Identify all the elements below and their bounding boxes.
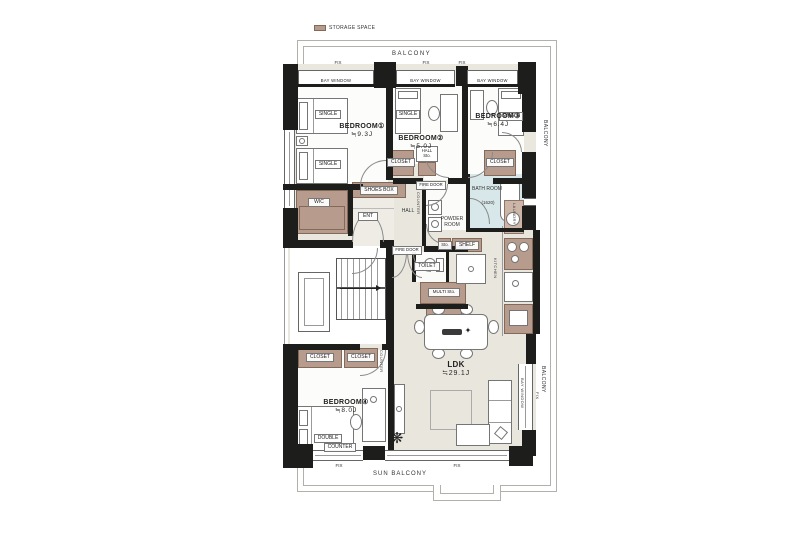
bed-fold-line bbox=[313, 149, 314, 183]
elevator-car bbox=[304, 278, 324, 326]
faucet bbox=[512, 280, 519, 287]
window-laundry bbox=[524, 198, 536, 206]
bath-room-size: (1620) bbox=[477, 200, 499, 205]
window-glass-line bbox=[387, 455, 507, 456]
wall bbox=[526, 334, 536, 364]
wall bbox=[283, 240, 353, 248]
kitchen-sink bbox=[509, 310, 528, 326]
bedroom3-name: BEDROOM③ bbox=[472, 112, 524, 120]
ent-step-line bbox=[350, 208, 394, 209]
closet-tag: CLOSET bbox=[306, 353, 334, 362]
bedroom3-label: BEDROOM③ ≒6.4J bbox=[472, 112, 524, 128]
desk bbox=[440, 94, 458, 132]
fix-label: FIX bbox=[330, 463, 348, 468]
laundry-vertical-label: LAUNDRY bbox=[512, 203, 517, 225]
bedroom1-name: BEDROOM① bbox=[334, 122, 390, 130]
multi-storage-tag: MULTI Sto. bbox=[428, 288, 460, 297]
wall-thin bbox=[467, 84, 518, 87]
wic-tag: WIC bbox=[308, 198, 330, 207]
chair bbox=[350, 414, 362, 430]
balcony-right-bottom-label: BALCONY bbox=[540, 366, 546, 393]
wall bbox=[493, 178, 522, 184]
stair-arrow-head bbox=[376, 285, 381, 291]
wall bbox=[509, 446, 533, 466]
bedroom1-size: ≒9.3J bbox=[334, 130, 390, 138]
counter-vertical-label: COUNTER bbox=[379, 350, 384, 373]
sun-balcony-label: SUN BALCONY bbox=[360, 471, 440, 477]
bed-pillow bbox=[299, 410, 308, 426]
fix-label: FIX bbox=[416, 60, 436, 65]
bay-window-2: BAY WINDOW bbox=[396, 70, 455, 85]
kitchen-vertical-label: KITCHEN bbox=[493, 258, 498, 278]
fix-label: FIX bbox=[452, 60, 472, 65]
counter-vertical-label: COUNTER bbox=[416, 192, 421, 215]
double-bed-tag: DOUBLE bbox=[314, 434, 342, 443]
wall bbox=[522, 206, 536, 230]
wall bbox=[466, 228, 524, 232]
bed-pillow bbox=[299, 102, 308, 130]
fire-door-tag: FIRE DOOR bbox=[416, 181, 446, 190]
bed-pillow bbox=[299, 429, 308, 445]
bedroom1-label: BEDROOM① ≒9.3J bbox=[334, 122, 390, 138]
stair-step bbox=[347, 259, 348, 319]
wall bbox=[446, 252, 449, 282]
wall bbox=[518, 62, 536, 94]
wall bbox=[363, 446, 385, 460]
bay-window-1: BAY WINDOW bbox=[298, 70, 374, 85]
single-bed-tag: SINGLE bbox=[315, 110, 341, 119]
table-runner bbox=[442, 329, 462, 335]
closet-tag: CLOSET bbox=[347, 353, 375, 362]
bedroom2-label: BEDROOM② ≒5.0J bbox=[392, 134, 450, 150]
bed-pillow bbox=[299, 152, 308, 180]
wall bbox=[522, 94, 536, 132]
tv-board-knob bbox=[396, 406, 402, 412]
wall bbox=[374, 62, 396, 88]
balcony-right-top-label: BALCONY bbox=[542, 120, 548, 147]
wall bbox=[283, 344, 360, 350]
ent-tag: ENT bbox=[358, 212, 378, 221]
wall bbox=[416, 304, 468, 309]
sofa-cushion-line bbox=[489, 400, 511, 401]
lamp bbox=[299, 138, 305, 144]
stair-step bbox=[371, 259, 372, 319]
ldk-name: LDK bbox=[430, 360, 482, 369]
storage-tag: Sto. bbox=[438, 241, 452, 250]
bay-window-vertical-label: BAY WINDOW bbox=[520, 378, 525, 408]
window-glass-line bbox=[315, 455, 361, 456]
fix-label: FIX bbox=[328, 60, 348, 65]
ldk-label: LDK ≒29.1J bbox=[430, 360, 482, 377]
closet-tag: CLOSET bbox=[486, 158, 514, 167]
wall bbox=[522, 152, 536, 198]
bath-room-label: BATH ROOM bbox=[472, 186, 502, 192]
balcony-top-label: BALCONY bbox=[392, 51, 428, 57]
bedroom3-size: ≒6.4J bbox=[472, 120, 524, 128]
stair-step bbox=[341, 259, 342, 319]
fix-label: FIX bbox=[448, 463, 466, 468]
bedroom2-name: BEDROOM② bbox=[392, 134, 450, 142]
wall bbox=[283, 444, 313, 468]
powder-room-label: POWDER ROOM bbox=[438, 216, 466, 228]
kitchen-counter bbox=[504, 272, 533, 302]
window-glass-line bbox=[525, 366, 526, 428]
wall bbox=[283, 344, 298, 454]
bedroom4-size: ≒8.0J bbox=[316, 406, 376, 414]
bed-fold-line bbox=[313, 99, 314, 133]
wall-thin bbox=[296, 84, 374, 87]
window-glass-line bbox=[289, 132, 290, 206]
chair bbox=[428, 106, 440, 121]
closet-tag: CLOSET bbox=[387, 158, 415, 167]
floor-plan: ✦ ❋ BAY WINDOW BAY WINDOW BAY WINDOW bbox=[0, 0, 800, 545]
wic-rail bbox=[299, 206, 345, 230]
fridge-handle bbox=[468, 266, 474, 272]
sun-balcony-notch-inner bbox=[440, 485, 494, 494]
storage-swatch-icon bbox=[314, 25, 326, 31]
toilet-tag: TOILET bbox=[414, 262, 440, 271]
legend-label: STORAGE SPACE bbox=[329, 25, 375, 31]
sofa-chaise bbox=[456, 424, 490, 446]
ldk-size: ≒29.1J bbox=[430, 369, 482, 377]
kitchen-counter-edge bbox=[502, 226, 503, 336]
table-star-icon: ✦ bbox=[463, 326, 473, 335]
stove-burner bbox=[519, 242, 529, 252]
wall bbox=[533, 230, 540, 334]
wall bbox=[388, 350, 394, 454]
sofa-cushion-line bbox=[489, 422, 511, 423]
wall bbox=[348, 190, 353, 236]
single-bed-tag: SINGLE bbox=[315, 160, 341, 169]
fire-door-tag: FIRE DOOR bbox=[392, 246, 422, 255]
single-bed-tag: SINGLE bbox=[396, 110, 420, 119]
bedroom4-label: BEDROOM④ ≒8.0J bbox=[316, 398, 376, 414]
stove-burner bbox=[507, 242, 517, 252]
shelf-tag: SHELF bbox=[455, 241, 479, 250]
bedroom2-size: ≒5.0J bbox=[392, 142, 450, 150]
stair-arrow-line bbox=[340, 288, 376, 289]
legend: STORAGE SPACE bbox=[314, 25, 375, 31]
stair-hall-left-line bbox=[284, 246, 292, 344]
wall-thin bbox=[396, 84, 455, 87]
counter-tag: COUNTER bbox=[324, 443, 356, 452]
dining-chair bbox=[488, 320, 499, 334]
shoes-box-tag: SHOES BOX bbox=[360, 186, 398, 195]
bed-pillow bbox=[398, 91, 418, 99]
wall bbox=[283, 64, 298, 130]
bay-window-3: BAY WINDOW bbox=[467, 70, 518, 85]
fix-vertical-label: FIX bbox=[535, 392, 540, 399]
stove-burner bbox=[511, 255, 519, 263]
bedroom4-name: BEDROOM④ bbox=[316, 398, 376, 406]
